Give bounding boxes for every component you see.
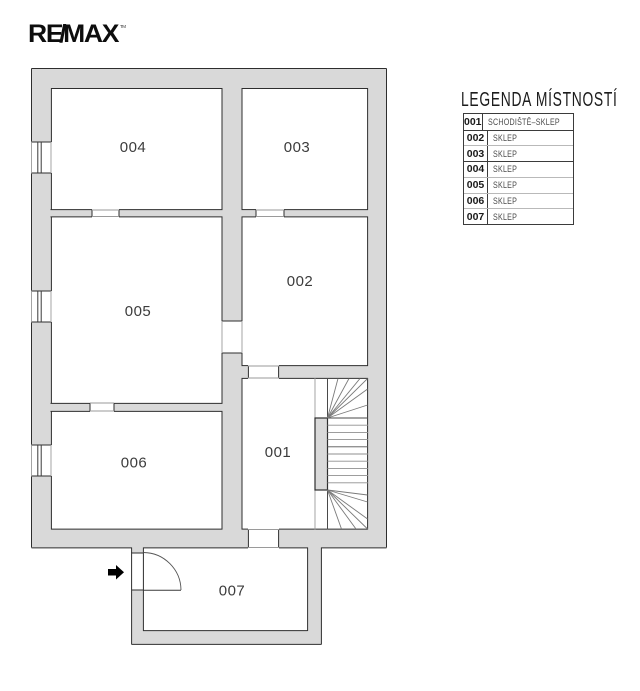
- svg-text:007: 007: [219, 583, 246, 600]
- svg-text:003: 003: [284, 139, 311, 156]
- svg-text:002: 002: [287, 273, 314, 290]
- svg-text:006: 006: [121, 455, 148, 472]
- svg-text:001: 001: [265, 444, 292, 461]
- svg-text:005: 005: [125, 303, 152, 320]
- svg-text:004: 004: [120, 139, 147, 156]
